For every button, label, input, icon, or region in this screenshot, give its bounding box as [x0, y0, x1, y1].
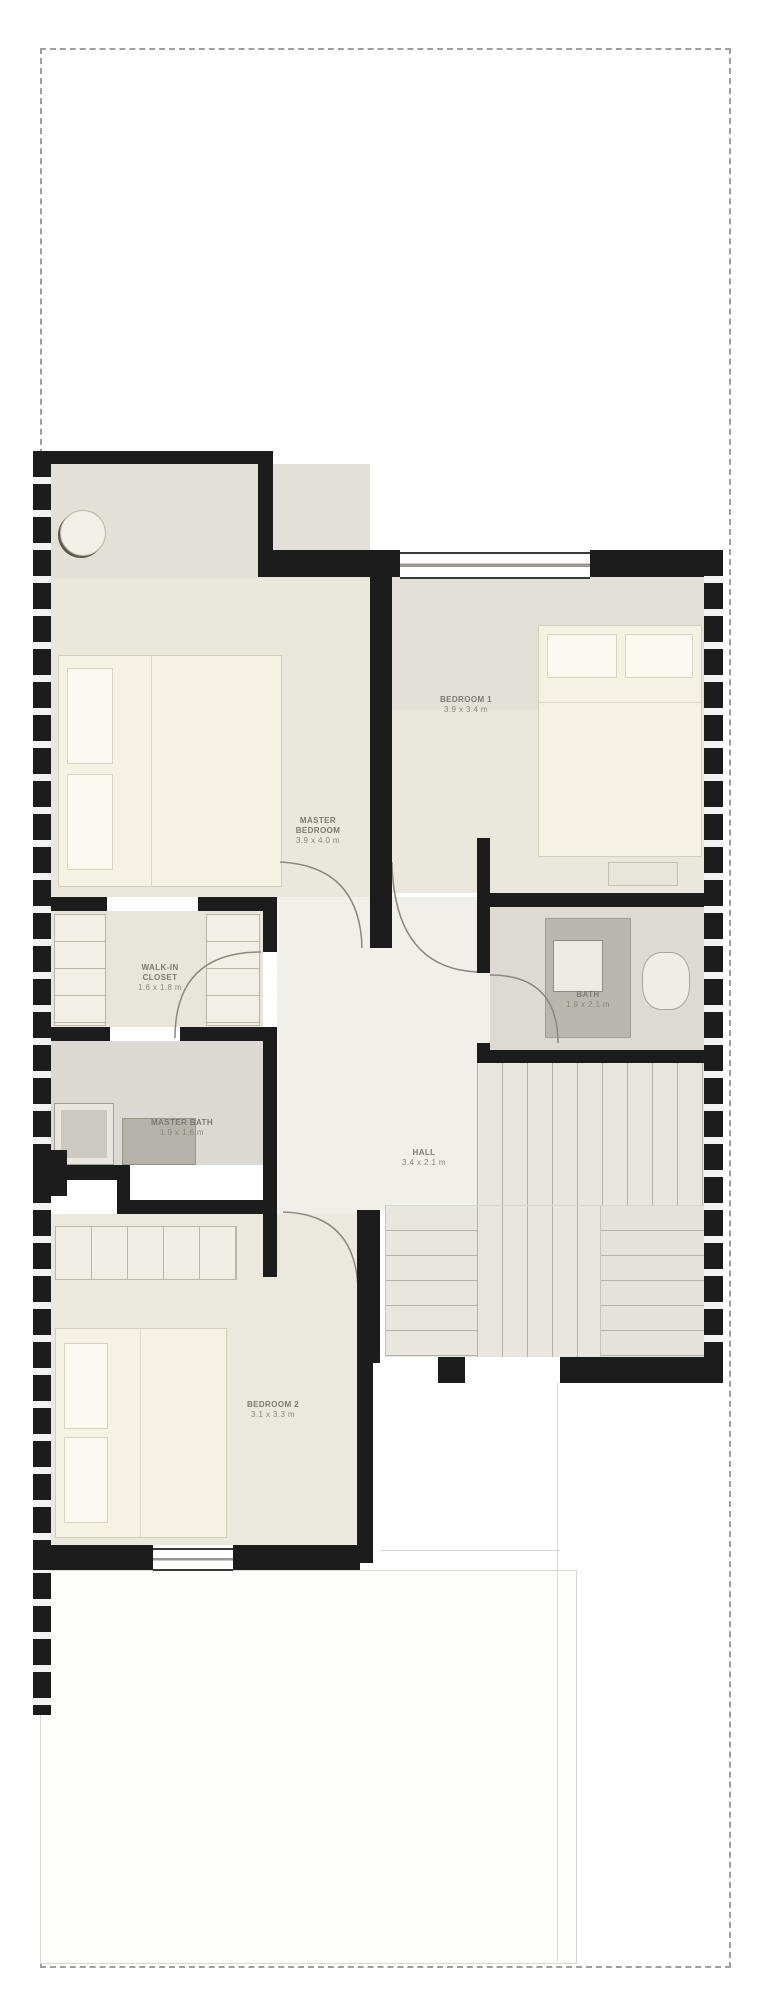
label-bedroom2: BEDROOM 2 3.1 x 3.3 m: [247, 1400, 299, 1420]
closet-door-arc: [175, 952, 261, 1038]
room-name: BEDROOM: [296, 826, 341, 836]
bath-door-arc: [490, 975, 558, 1043]
master-bedroom-door-arc: [280, 862, 362, 948]
bedroom2-top-wall: [130, 1200, 277, 1214]
label-bath: BATH 1.9 x 2.1 m: [566, 990, 610, 1010]
room-dims: 1.6 x 1.8 m: [138, 983, 182, 993]
bedroom2-window: [153, 1548, 233, 1571]
room-dims: 3.1 x 3.3 m: [247, 1410, 299, 1420]
closet-top-wall-left: [51, 897, 107, 911]
top-step-wall: [258, 451, 273, 563]
bedroom2-stair-wall-upper: [357, 1210, 380, 1363]
bedroom2-bottom-wall-right: [233, 1545, 360, 1570]
room-name: BEDROOM 1: [440, 695, 492, 705]
bedroom1-door-arc: [392, 862, 477, 972]
room-name: HALL: [402, 1148, 446, 1158]
bath-left-wall: [477, 893, 490, 973]
room-name: CLOSET: [138, 973, 182, 983]
bedroom2-stair-wall-lower: [357, 1363, 373, 1563]
master-bath-corner-pier: [33, 1150, 67, 1196]
room-name: MASTER: [296, 816, 341, 826]
closet-bottom-wall-left: [51, 1027, 110, 1041]
master-bedroom1-divider-wall: [370, 563, 392, 948]
bedroom2-bottom-wall-left: [33, 1545, 153, 1570]
door-arcs: [0, 0, 768, 1991]
room-name: BATH: [566, 990, 610, 1000]
room-dims: 3.9 x 4.0 m: [296, 836, 341, 846]
exterior-wall-right: [704, 550, 723, 1383]
bath-bottom-wall: [477, 1050, 704, 1063]
top-wall-upper: [33, 451, 273, 464]
label-hall: HALL 3.4 x 2.1 m: [402, 1148, 446, 1168]
room-name: WALK-IN: [138, 963, 182, 973]
room-dims: 3.4 x 2.1 m: [402, 1158, 446, 1168]
bedroom2-door-arc: [283, 1212, 358, 1290]
room-dims: 1.9 x 2.1 m: [566, 1000, 610, 1010]
label-master-bedroom: MASTER BEDROOM 3.9 x 4.0 m: [296, 816, 341, 846]
room-name: MASTER BATH: [151, 1118, 213, 1128]
bedroom1-window: [400, 552, 590, 579]
closet-hall-wall-lower: [263, 1040, 277, 1277]
label-master-bath: MASTER BATH 1.9 x 1.6 m: [151, 1118, 213, 1138]
exterior-wall-left: [33, 451, 51, 1715]
label-bedroom1: BEDROOM 1 3.9 x 3.4 m: [440, 695, 492, 715]
stairs-bottom-pier: [438, 1357, 465, 1383]
stairs-bottom-wall: [560, 1357, 723, 1383]
label-walk-in-closet: WALK-IN CLOSET 1.6 x 1.8 m: [138, 963, 182, 993]
closet-top-wall-right: [198, 897, 277, 911]
room-name: BEDROOM 2: [247, 1400, 299, 1410]
room-dims: 3.9 x 3.4 m: [440, 705, 492, 715]
closet-bottom-wall-right: [180, 1027, 277, 1041]
bedroom1-bottom-wall: [490, 893, 704, 907]
bath-bedroom2-jog-wall: [117, 1165, 130, 1214]
floor-plan-page: MASTER BEDROOM 3.9 x 4.0 m BEDROOM 1 3.9…: [0, 0, 768, 1991]
room-dims: 1.9 x 1.6 m: [151, 1128, 213, 1138]
